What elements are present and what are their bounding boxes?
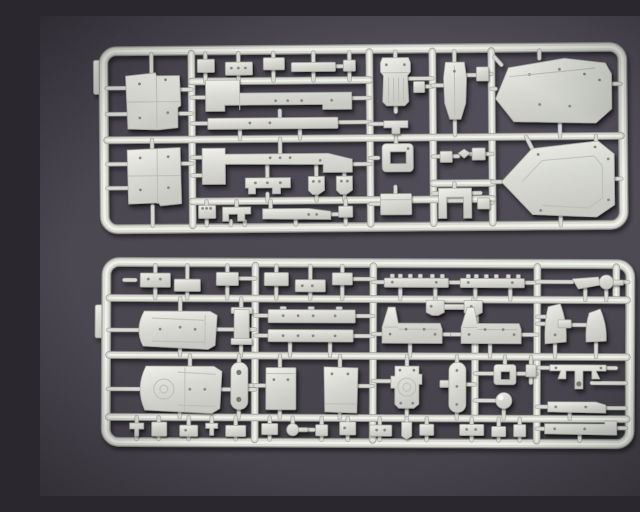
film-grain	[40, 16, 640, 496]
sprue-photo-canvas	[40, 16, 640, 496]
model-sprues-photo	[40, 16, 640, 496]
